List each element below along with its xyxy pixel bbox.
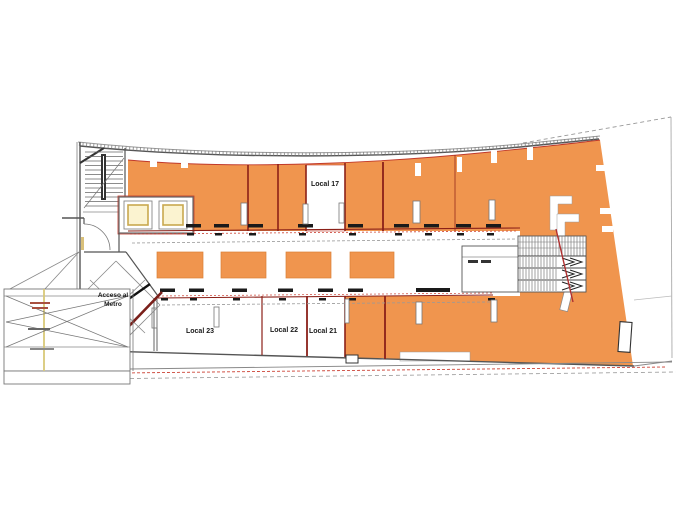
elevator-shaft-1 xyxy=(124,201,152,229)
escalator-info-box xyxy=(462,246,518,292)
elevator-block xyxy=(118,196,194,234)
floor-plan-drawing: Local 17 Local 23 Local 22 Local 21 Acce… xyxy=(0,0,680,510)
floor-plan: Local 17 Local 23 Local 22 Local 21 Acce… xyxy=(0,0,680,510)
corridor-kiosks xyxy=(157,252,394,278)
door-swing-arc xyxy=(84,224,110,250)
metro-access-label-line2: Metro xyxy=(104,301,122,308)
unit-label-local-23: Local 23 xyxy=(186,328,214,335)
metro-access-label-line1: Acceso al xyxy=(98,292,129,299)
unit-entry-tag-long xyxy=(416,288,450,292)
orange-narrow-unit xyxy=(345,296,385,358)
unit-label-local-22: Local 22 xyxy=(270,327,298,334)
escalator-core xyxy=(462,229,586,302)
elevator-shaft-2 xyxy=(159,201,187,229)
door-leaf xyxy=(81,237,84,250)
unit-label-local-17: Local 17 xyxy=(311,181,339,188)
unit-label-local-21: Local 21 xyxy=(309,328,337,335)
